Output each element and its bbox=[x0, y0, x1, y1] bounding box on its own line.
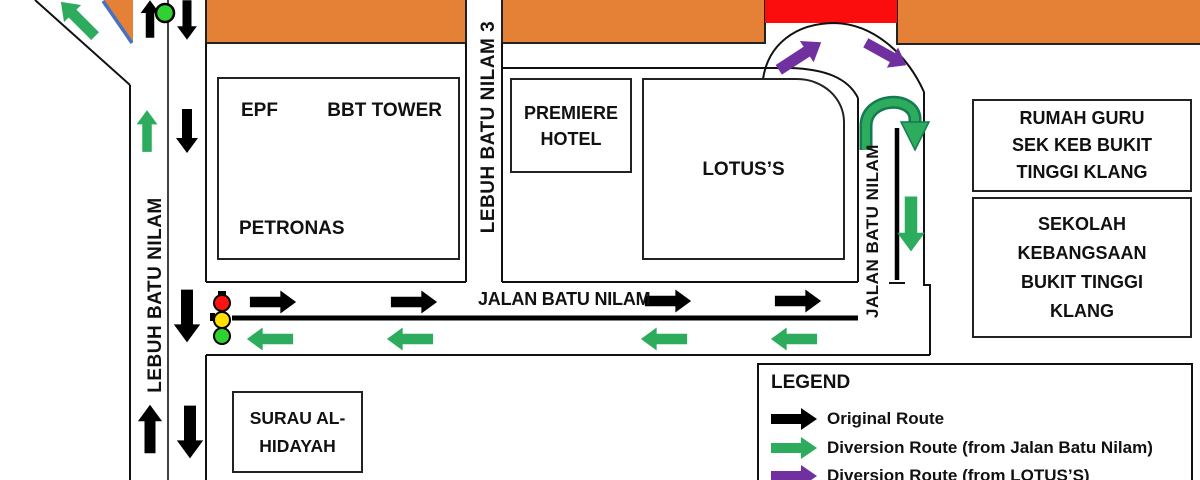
right-arrow bbox=[645, 289, 691, 312]
building-label-line: TINGGI KLANG bbox=[1017, 159, 1148, 186]
building-rumah-guru: RUMAH GURU SEK KEB BUKIT TINGGI KLANG bbox=[972, 99, 1192, 192]
traffic-light-icon bbox=[210, 291, 230, 344]
building-epf-bbt-petronas: EPF BBT TOWER PETRONAS bbox=[217, 77, 460, 260]
up-arrow bbox=[141, 0, 160, 37]
road-label-jalan-batu-nilam-vertical: JALAN BATU NILAM bbox=[863, 143, 883, 319]
diversion-map: EPF BBT TOWER PETRONAS PREMIERE HOTEL LO… bbox=[0, 0, 1200, 480]
down-arrow bbox=[177, 406, 203, 459]
building-premiere-hotel: PREMIERE HOTEL bbox=[510, 78, 632, 173]
road-label-lebuh-batu-nilam-3: LEBUH BATU NILAM 3 bbox=[478, 19, 500, 235]
building-label-petronas: PETRONAS bbox=[239, 218, 345, 240]
down-arrow bbox=[174, 290, 200, 343]
original-route-arrow-icon bbox=[769, 407, 819, 431]
building-lotus: LOTUS’S bbox=[642, 78, 845, 260]
building-label-line: PREMIERE bbox=[524, 100, 618, 126]
closed-road-bar-1 bbox=[206, 0, 466, 43]
legend: LEGEND Original Route Diversion Route (f… bbox=[757, 363, 1193, 480]
left-arrow bbox=[387, 327, 433, 350]
road-label-lebuh-batu-nilam: LEBUH BATU NILAM bbox=[145, 195, 167, 395]
legend-row-diversion-purple: Diversion Route (from LOTUS’S) bbox=[769, 464, 1090, 480]
building-label-line: SEK KEB BUKIT bbox=[1012, 132, 1152, 159]
up-right-arrow bbox=[772, 32, 828, 81]
building-sekolah: SEKOLAH KEBANGSAAN BUKIT TINGGI KLANG bbox=[972, 197, 1192, 338]
road-label-jalan-batu-nilam: JALAN BATU NILAM bbox=[478, 289, 650, 310]
building-label-line: SEKOLAH bbox=[1038, 210, 1126, 239]
building-label-line: HIDAYAH bbox=[259, 432, 336, 460]
right-arrow bbox=[250, 290, 296, 313]
down-arrow bbox=[897, 197, 925, 252]
up-arrow bbox=[137, 110, 158, 152]
left-arrow bbox=[771, 327, 817, 350]
building-label-line: SURAU AL- bbox=[250, 404, 346, 432]
building-label-line: RUMAH GURU bbox=[1020, 105, 1145, 132]
down-arrow bbox=[176, 109, 198, 153]
traffic-light-green-icon bbox=[156, 4, 174, 22]
right-arrow bbox=[775, 289, 821, 312]
building-label-lotus: LOTUS’S bbox=[702, 156, 784, 183]
up-arrow bbox=[138, 405, 162, 453]
closed-road-bar-3 bbox=[897, 0, 1200, 44]
building-label-line: KLANG bbox=[1050, 297, 1114, 326]
diversion-route-arrows-purple bbox=[772, 32, 912, 81]
diversion-purple-arrow-icon bbox=[769, 464, 819, 480]
diversion-green-arrow-icon bbox=[769, 436, 819, 460]
left-arrow bbox=[641, 327, 687, 350]
building-label-bbt-tower: BBT TOWER bbox=[327, 100, 442, 122]
legend-title: LEGEND bbox=[771, 372, 850, 394]
closed-road-bar-2 bbox=[502, 0, 765, 43]
legend-row-original: Original Route bbox=[769, 407, 944, 431]
full-closure-red-segment bbox=[765, 0, 897, 23]
building-label-line: KEBANGSAAN bbox=[1017, 239, 1146, 268]
legend-item-label: Diversion Route (from LOTUS’S) bbox=[827, 466, 1090, 480]
legend-item-label: Diversion Route (from Jalan Batu Nilam) bbox=[827, 438, 1153, 458]
building-label-line: BUKIT TINGGI bbox=[1021, 268, 1143, 297]
building-label-epf: EPF bbox=[241, 100, 278, 122]
down-arrow bbox=[177, 0, 197, 40]
building-label-line: HOTEL bbox=[541, 126, 602, 152]
legend-row-diversion-green: Diversion Route (from Jalan Batu Nilam) bbox=[769, 436, 1153, 460]
right-arrow bbox=[391, 290, 437, 313]
building-surau: SURAU AL- HIDAYAH bbox=[232, 391, 363, 473]
legend-item-label: Original Route bbox=[827, 409, 944, 429]
left-arrow bbox=[247, 327, 293, 350]
